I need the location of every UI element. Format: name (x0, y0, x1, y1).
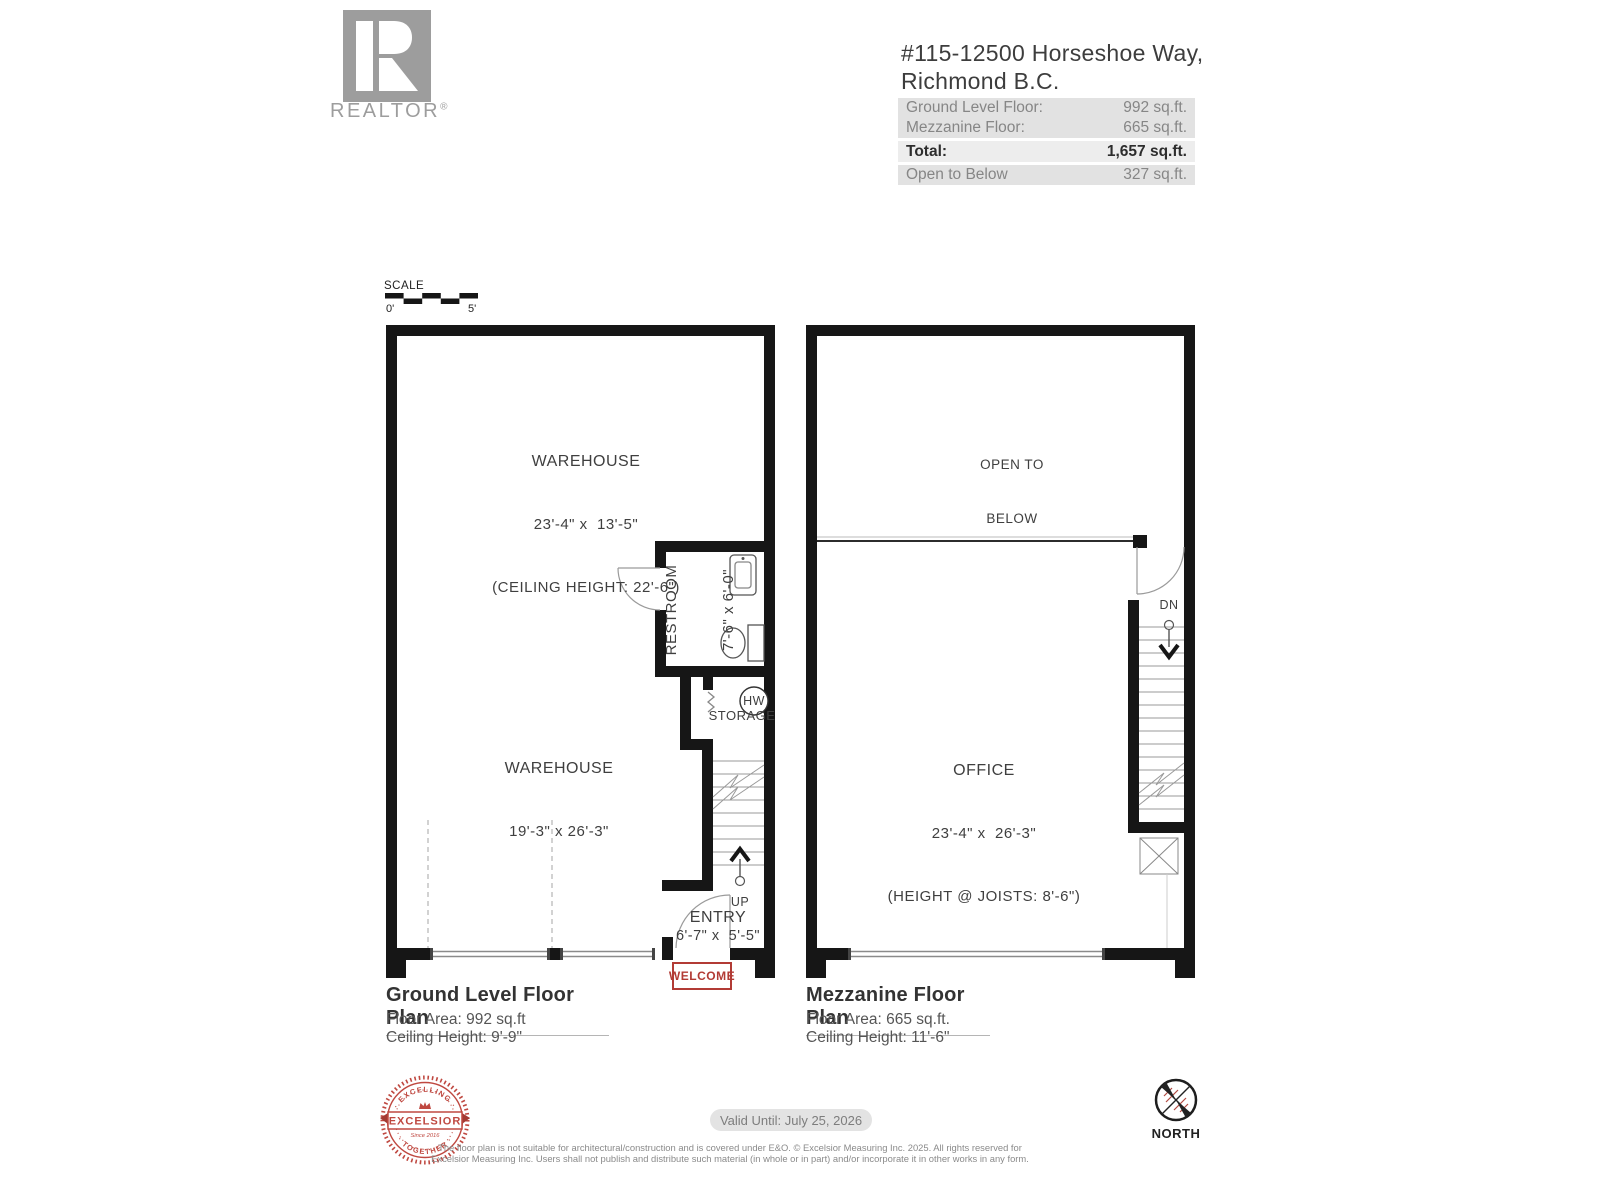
north-label: NORTH (1152, 1126, 1201, 1141)
row-label: Open to Below (906, 166, 1008, 184)
registered-mark: ® (440, 101, 450, 112)
mezz-window (848, 948, 1105, 960)
welcome-label: WELCOME (669, 969, 735, 983)
table-row-total: Total: 1,657 sq.ft. (898, 141, 1195, 162)
scale-start: 0' (386, 303, 394, 315)
floor-plan-page: REALTOR® #115-12500 Horseshoe Way, Richm… (0, 0, 1600, 1200)
ground-ceiling-height: Ceiling Height: 9'-9" (386, 1029, 522, 1047)
storage-label: STORAGE (709, 708, 776, 723)
table-row: Mezzanine Floor: 665 sq.ft. (898, 118, 1195, 138)
row-value: 1,657 sq.ft. (1107, 143, 1187, 161)
ground-windows (430, 948, 655, 960)
table-row: Open to Below 327 sq.ft. (898, 165, 1195, 185)
room-name: OFFICE (888, 760, 1081, 781)
room-name: RESTROOM (662, 565, 681, 656)
ground-stairs (680, 739, 764, 891)
disclaimer-line: The floor plan is not suitable for archi… (380, 1142, 1080, 1153)
stair-arrow-origin (736, 877, 745, 886)
address-line1: #115-12500 Horseshoe Way, (901, 40, 1203, 67)
badge-ribbon-label: EXCELSIOR (389, 1116, 462, 1128)
mezz-shaft (1140, 838, 1178, 948)
hw-label: HW (743, 694, 765, 708)
realtor-label: REALTOR (330, 100, 440, 122)
valid-until-pill: Valid Until: July 25, 2026 (710, 1109, 872, 1131)
scale-bar-icon (385, 293, 478, 304)
mezzanine-floor-area: Floor Area: 665 sq.ft. (806, 1011, 950, 1029)
realtor-wordmark: REALTOR® (330, 100, 450, 123)
room-dims: 23'-4" x 13'-5" (492, 514, 680, 535)
restroom-label: RESTROOM 7'-6" x 6'-0" (624, 565, 776, 656)
welcome-mat: WELCOME (672, 962, 732, 990)
row-value: 665 sq.ft. (1123, 119, 1187, 137)
row-value: 992 sq.ft. (1123, 99, 1187, 117)
row-label: Ground Level Floor: (906, 99, 1043, 117)
address-line2: Richmond B.C. (901, 68, 1060, 95)
entry-dims: 6'-7" x 5'-5" (676, 928, 760, 944)
room-dims: 23'-4" x 26'-3" (888, 823, 1081, 844)
mezzanine-ceiling-height: Ceiling Height: 11'-6" (806, 1029, 949, 1047)
row-label: Total: (906, 143, 947, 161)
warehouse-lower-label: WAREHOUSE 19'-3" x 26'-3" (505, 716, 614, 884)
open-to-below-label: OPEN TO BELOW (980, 420, 1044, 564)
row-value: 327 sq.ft. (1123, 166, 1187, 184)
office-label: OFFICE 23'-4" x 26'-3" (HEIGHT @ JOISTS:… (888, 718, 1081, 949)
label-line: OPEN TO (980, 456, 1044, 474)
room-name: WAREHOUSE (492, 451, 680, 472)
mezz-door-arc (1137, 547, 1184, 594)
entry-name: ENTRY (690, 909, 746, 927)
room-dims: 7'-6" x 6'-0" (719, 565, 738, 656)
room-name: WAREHOUSE (505, 758, 614, 779)
table-row: Ground Level Floor: 992 sq.ft. (898, 98, 1195, 118)
stair-arrow-origin (1165, 621, 1174, 630)
badge-since-label: Since 2016 (410, 1133, 440, 1139)
dn-label: DN (1159, 598, 1178, 612)
scale-end: 5' (468, 303, 476, 315)
realtor-logo-icon (343, 10, 431, 102)
room-dims: 19'-3" x 26'-3" (505, 821, 614, 842)
up-label: UP (731, 895, 749, 909)
disclaimer-line: Excelsior Measuring Inc. Users shall not… (380, 1153, 1080, 1164)
label-line: BELOW (980, 510, 1044, 528)
valid-until-text: Valid Until: July 25, 2026 (720, 1113, 862, 1128)
north-compass-icon (1153, 1077, 1199, 1123)
disclaimer: The floor plan is not suitable for archi… (380, 1142, 1080, 1164)
room-note: (HEIGHT @ JOISTS: 8'-6") (888, 886, 1081, 907)
row-label: Mezzanine Floor: (906, 119, 1025, 137)
ground-floor-area: Floor Area: 992 sq.ft (386, 1011, 526, 1029)
scale-label: SCALE (384, 280, 424, 292)
area-table: Ground Level Floor: 992 sq.ft. Mezzanine… (898, 98, 1195, 185)
